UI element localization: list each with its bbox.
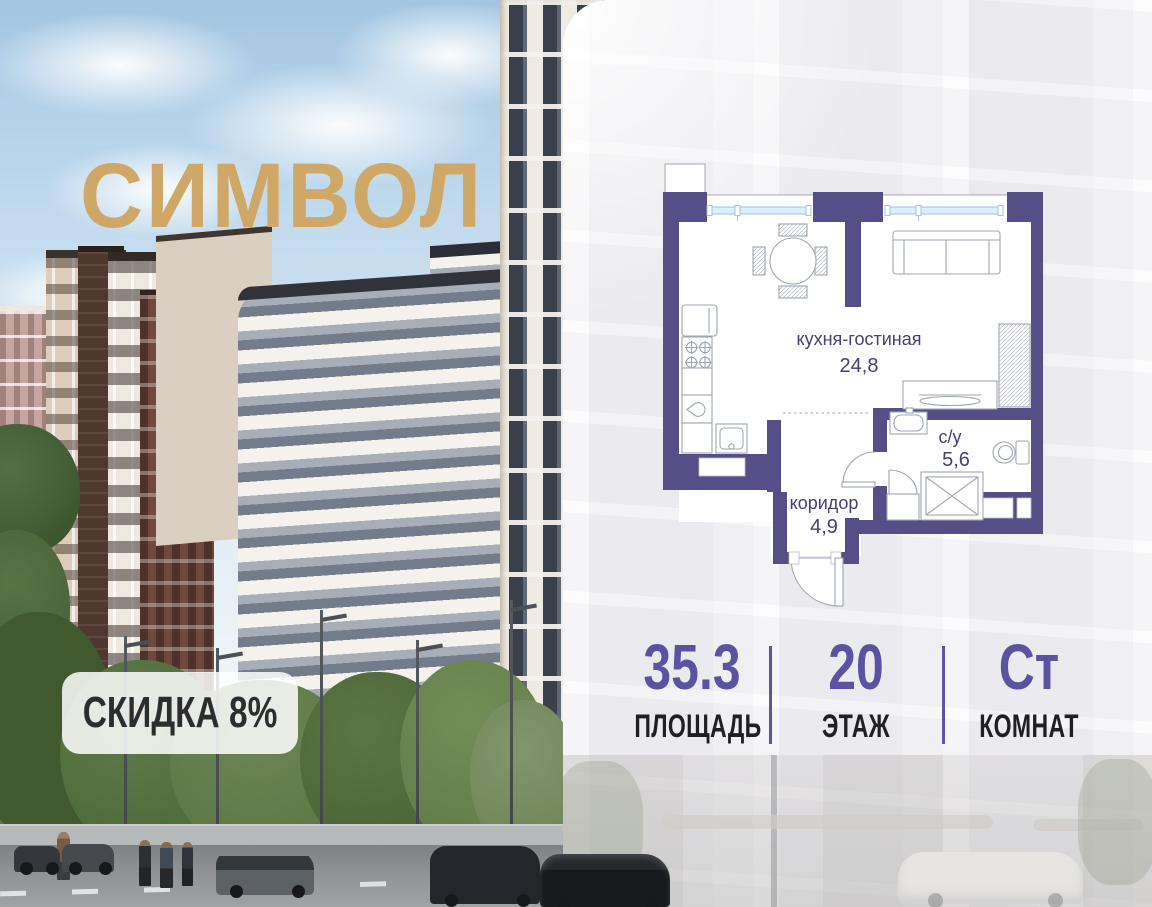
tv-stand [903,381,997,409]
stat-rooms: Ст КОМНАТ [949,634,1109,752]
car-sedan [216,851,314,895]
parked-car [62,844,114,872]
room-label-corridor: коридор [790,493,859,513]
faded-umbrellas [663,815,993,829]
room-label-bathroom: с/у [938,427,961,447]
room-area-corridor: 4,9 [810,516,838,538]
streetlight-pole [320,610,323,860]
pedestrian [139,840,151,886]
parked-car [14,846,60,872]
room-label-kitchen-living: кухня-гостиная [797,329,922,349]
foreground-car [540,854,670,907]
pedestrian [182,842,193,886]
wardrobe [999,324,1030,407]
building-photo: СИМВОЛ СКИДКА 8% [0,0,622,907]
stat-area: 35.3 ПЛОЩАДЬ [612,634,772,752]
corner-sink-unit [716,424,747,453]
kitchen-counter [682,368,712,453]
pedestrian [160,842,173,888]
entry-door-swing [791,558,839,606]
stat-floor-value: 20 [794,634,919,700]
faded-pole [771,755,777,907]
stat-rooms-value: Ст [967,634,1092,700]
room-area-bathroom: 5,6 [942,449,970,471]
stat-floor: 20 ЭТАЖ [776,634,936,752]
floor-plan: кухня-гостиная 24,8 с/у 5,6 коридор 4,9 [663,162,1143,662]
stat-divider [942,646,945,744]
stat-rooms-label: КОМНАТ [971,708,1086,744]
balcony [665,164,705,193]
sofa [893,231,1000,274]
stat-area-label: ПЛОЩАДЬ [634,708,749,744]
project-logo: СИМВОЛ [68,148,496,244]
streetlight-pole [510,600,513,862]
stat-floor-label: ЭТАЖ [798,708,913,744]
entry-door-leaf [835,558,843,606]
car-dark [430,846,540,904]
discount-badge: СКИДКА 8% [62,672,298,754]
faded-car [898,852,1083,904]
stove [682,337,712,369]
stat-divider [769,646,772,744]
discount-badge-text: СКИДКА 8% [83,688,278,738]
fridge [682,305,717,336]
shower [921,472,983,520]
listing-card[interactable]: СИМВОЛ СКИДКА 8% [0,0,1152,907]
bathroom-sink [890,408,927,434]
toilet [993,441,1029,464]
stat-area-value: 35.3 [630,634,755,700]
room-area-kitchen-living: 24,8 [840,355,879,377]
faded-tree [1078,759,1152,885]
